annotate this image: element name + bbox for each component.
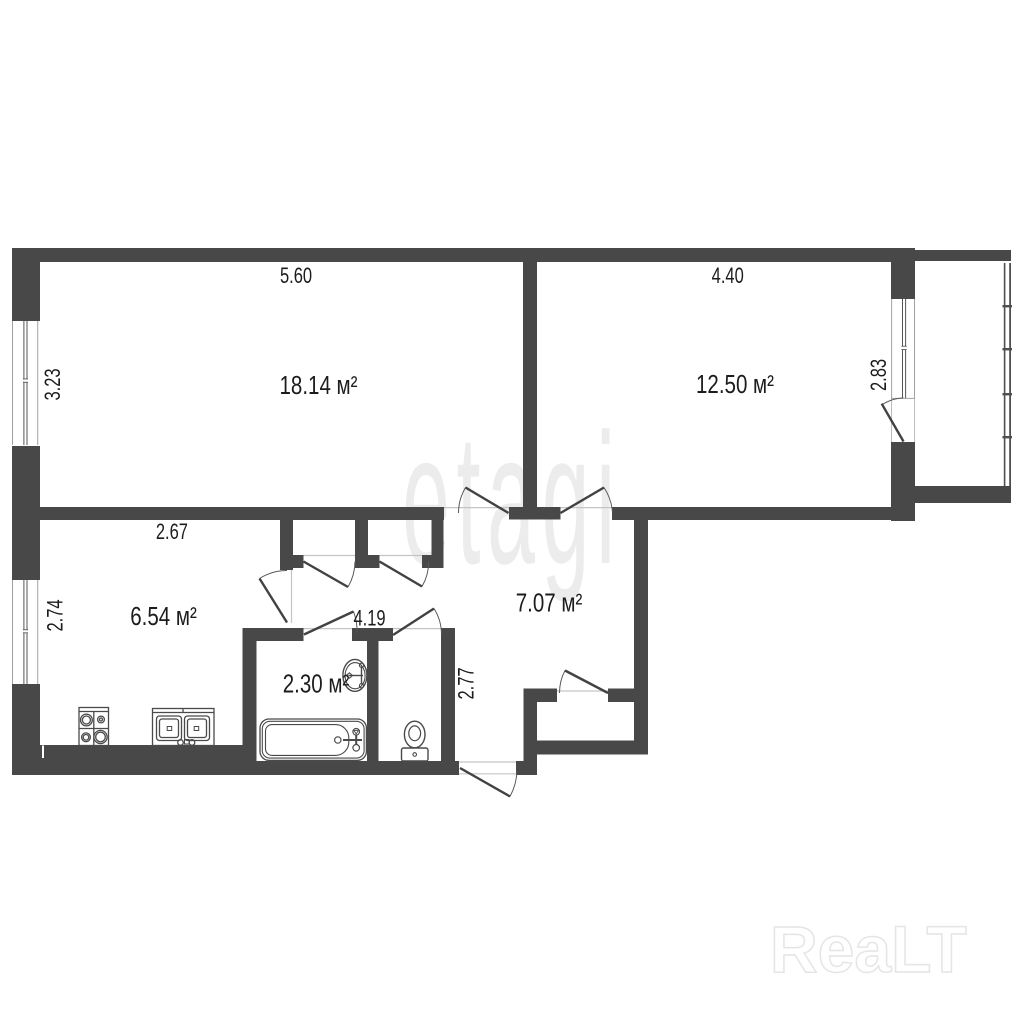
svg-text:2.74: 2.74	[43, 599, 68, 631]
svg-text:5.60: 5.60	[280, 264, 312, 289]
svg-text:2.83: 2.83	[867, 359, 892, 391]
svg-text:4.19: 4.19	[353, 606, 385, 631]
svg-text:2.30 м²: 2.30 м²	[283, 669, 350, 698]
svg-text:2.77: 2.77	[454, 667, 479, 699]
svg-text:18.14 м²: 18.14 м²	[280, 371, 358, 400]
svg-text:ReaLT: ReaLT	[770, 912, 967, 986]
svg-text:2.67: 2.67	[156, 520, 188, 545]
svg-text:7.07 м²: 7.07 м²	[516, 588, 583, 617]
svg-text:12.50 м²: 12.50 м²	[696, 370, 774, 399]
svg-text:6.54 м²: 6.54 м²	[130, 602, 197, 631]
svg-text:3.23: 3.23	[41, 368, 66, 400]
svg-text:etagi: etagi	[402, 395, 622, 603]
svg-text:4.40: 4.40	[712, 264, 744, 289]
